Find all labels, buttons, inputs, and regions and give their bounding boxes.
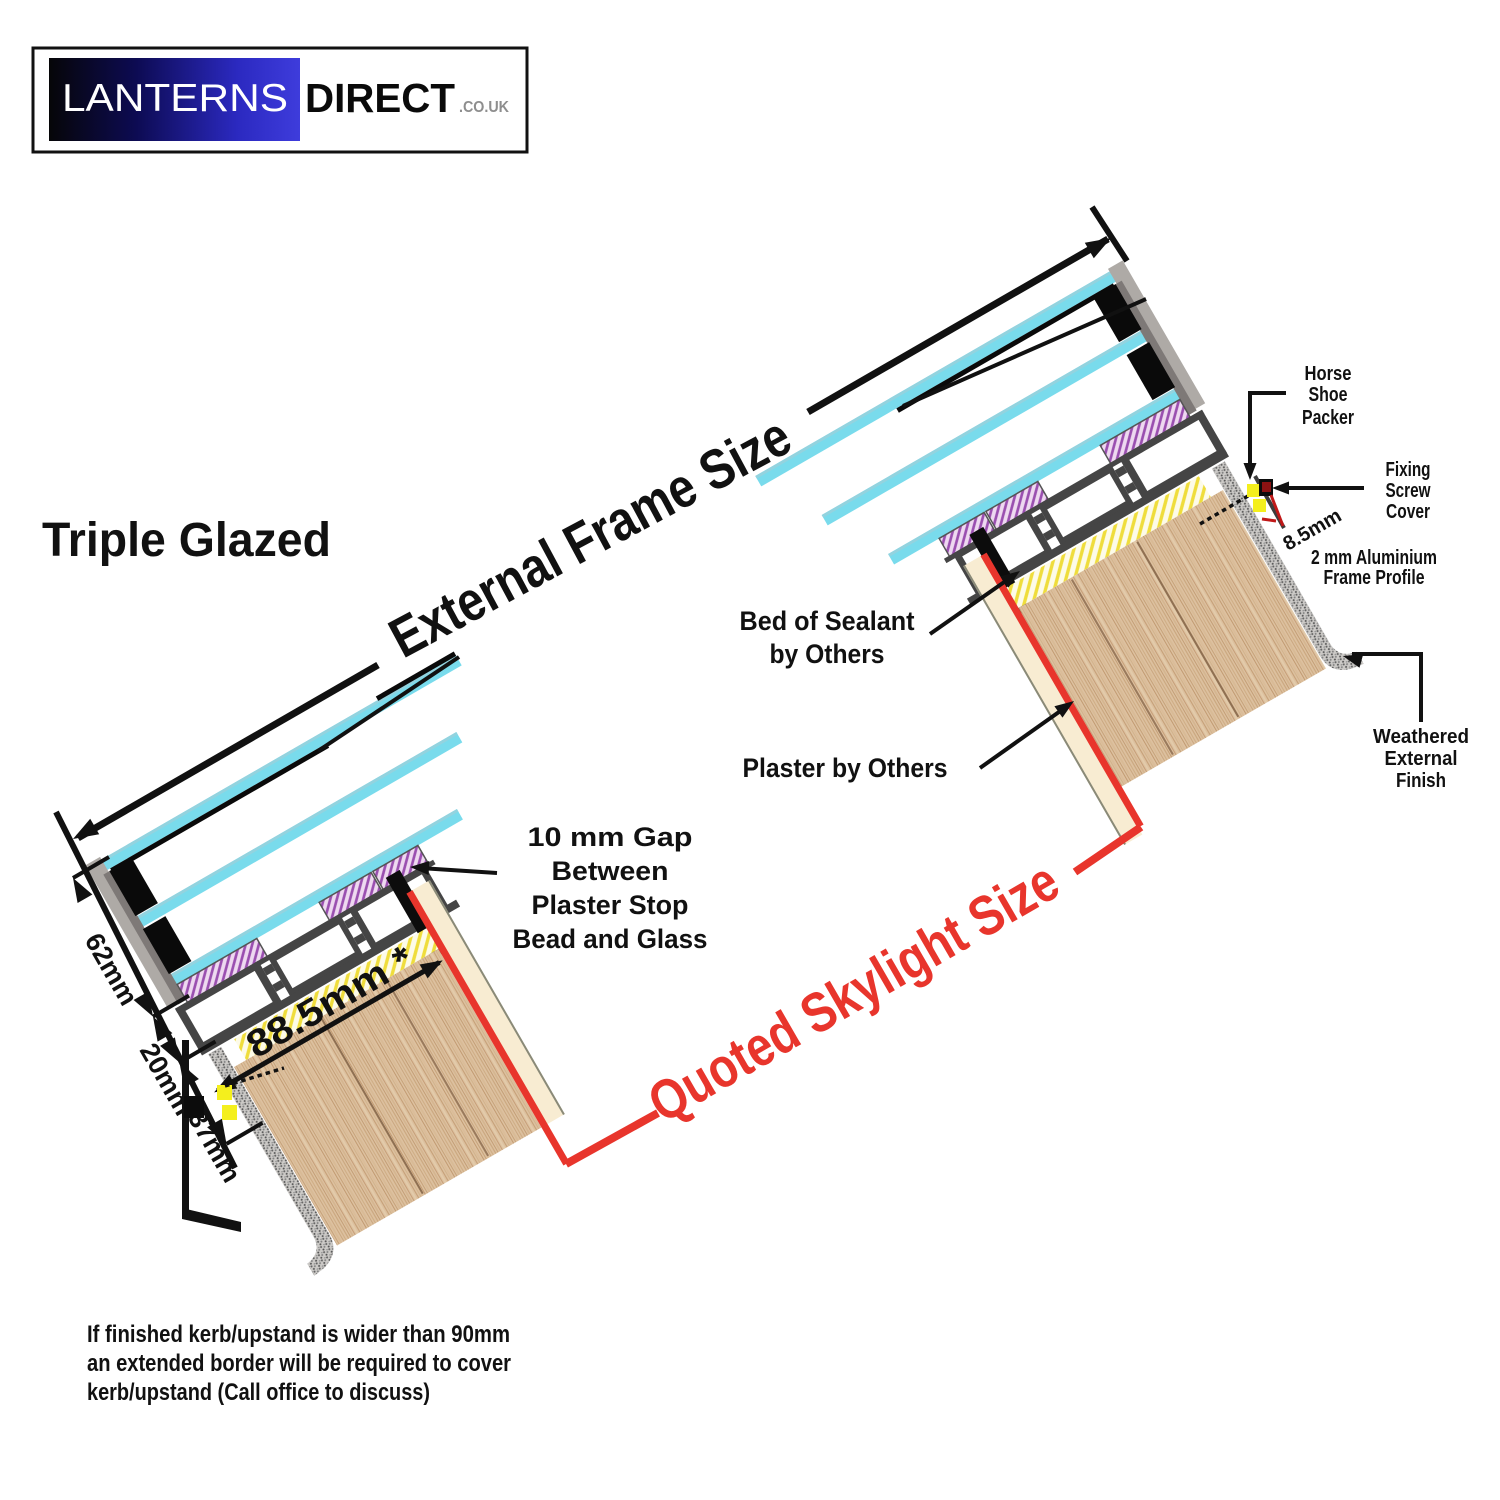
svg-text:Triple Glazed: Triple Glazed bbox=[42, 514, 331, 567]
svg-text:Bead and Glass: Bead and Glass bbox=[513, 924, 708, 954]
svg-text:Finish: Finish bbox=[1396, 770, 1446, 792]
svg-text:.CO.UK: .CO.UK bbox=[459, 99, 509, 116]
svg-text:Screw: Screw bbox=[1386, 480, 1431, 502]
svg-text:Fixing: Fixing bbox=[1386, 459, 1431, 481]
svg-text:Shoe: Shoe bbox=[1309, 384, 1348, 406]
svg-text:If finished kerb/upstand is wi: If finished kerb/upstand is wider than 9… bbox=[87, 1321, 510, 1348]
svg-text:by Others: by Others bbox=[770, 639, 885, 669]
svg-text:10 mm Gap: 10 mm Gap bbox=[528, 822, 693, 852]
svg-text:Plaster by Others: Plaster by Others bbox=[743, 753, 948, 783]
svg-text:Packer: Packer bbox=[1302, 407, 1354, 429]
svg-text:Between: Between bbox=[552, 856, 669, 886]
svg-text:Frame Profile: Frame Profile bbox=[1324, 567, 1425, 589]
svg-text:Cover: Cover bbox=[1386, 501, 1430, 523]
svg-text:kerb/upstand (Call office to d: kerb/upstand (Call office to discuss) bbox=[87, 1379, 430, 1406]
svg-text:LANTERNS: LANTERNS bbox=[62, 77, 288, 120]
svg-text:DIRECT: DIRECT bbox=[305, 75, 455, 121]
svg-text:Horse: Horse bbox=[1305, 363, 1352, 385]
svg-text:Weathered: Weathered bbox=[1373, 726, 1469, 748]
svg-text:an extended border will be req: an extended border will be required to c… bbox=[87, 1350, 511, 1377]
svg-text:Bed of Sealant: Bed of Sealant bbox=[740, 606, 915, 636]
svg-text:2 mm Aluminium: 2 mm Aluminium bbox=[1311, 547, 1437, 569]
svg-text:External: External bbox=[1385, 748, 1458, 770]
svg-text:Plaster Stop: Plaster Stop bbox=[532, 890, 689, 920]
